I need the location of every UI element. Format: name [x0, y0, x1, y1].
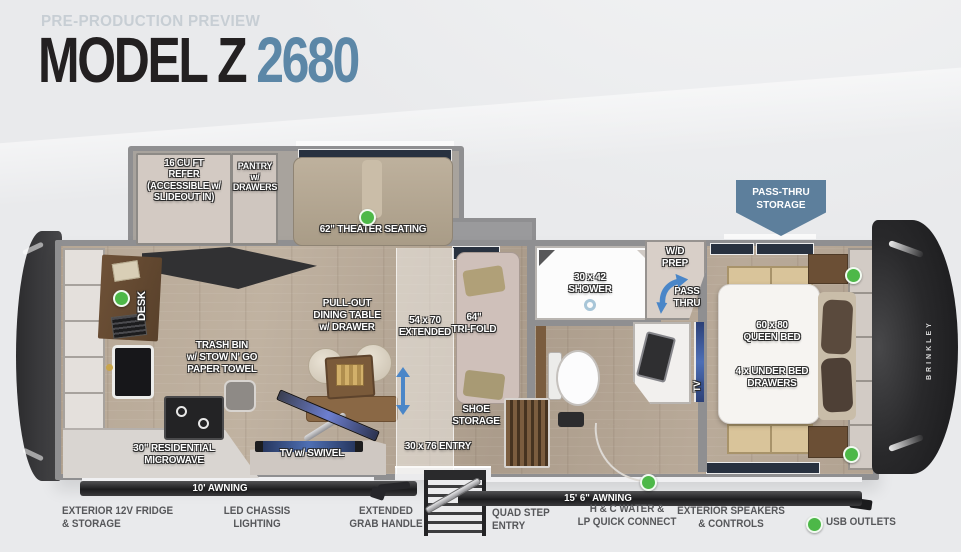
usb-dot-theater	[359, 209, 376, 226]
callout-grab-handle: EXTENDED GRAB HANDLE	[338, 505, 433, 531]
table-extend-arrow-icon	[396, 368, 410, 414]
brand-logo: BRINKLEY	[926, 294, 940, 406]
shower-drain	[584, 299, 596, 311]
legend-usb-label: USB OUTLETS	[826, 516, 907, 529]
awning-left-label: 10' AWNING	[156, 482, 285, 494]
entry-label: 30 x 76 ENTRY	[393, 441, 483, 453]
page-title: MODEL Z2680	[38, 30, 358, 91]
trash-bin	[224, 380, 256, 412]
callout-led-chassis: LED CHASSIS LIGHTING	[204, 505, 310, 531]
sofa-pillow-bottom	[463, 370, 506, 401]
pass-thru-storage-label: PASS-THRU STORAGE	[738, 186, 824, 212]
rear-wall-cabinets	[63, 248, 105, 430]
kitchen-faucet	[106, 364, 113, 371]
floorplan-number: 2680	[256, 24, 358, 96]
range-burner-right	[198, 418, 209, 429]
refer-label: 16 CU FT REFER (ACCESSIBLE w/ SLIDEOUT I…	[139, 158, 229, 203]
range-burner-left	[176, 406, 187, 417]
bedroom-window-top-left	[710, 243, 754, 255]
bedroom-window-bottom	[706, 462, 820, 474]
pantry-label: PANTRY w/ DRAWERS	[232, 162, 279, 194]
toilet-waste-bin	[558, 412, 584, 427]
bedroom-window-trim	[724, 234, 816, 239]
microwave-label: 30" RESIDENTIAL MICROWAVE	[103, 443, 246, 467]
bath-wood-panel	[536, 326, 546, 408]
callout-water-lp: H & C WATER & LP QUICK CONNECT	[569, 503, 686, 529]
callout-exterior-fridge: EXTERIOR 12V FRIDGE & STORAGE	[62, 505, 179, 531]
body-bottom-trim-right	[458, 477, 862, 482]
theater-label: 62" THEATER SEATING	[293, 224, 453, 236]
under-bed-label: 4 x UNDER BED DRAWERS	[716, 366, 829, 390]
pass-thru-arrow-icon	[650, 272, 690, 314]
trash-label: TRASH BIN w/ STOW N' GO PAPER TOWEL	[152, 340, 291, 376]
bed-pillow-top	[821, 299, 854, 354]
callout-exterior-speakers: EXTERIOR SPEAKERS & CONTROLS	[674, 505, 787, 531]
dining-label: PULL-OUT DINING TABLE w/ DRAWER	[292, 298, 403, 334]
kitchen-sink	[112, 345, 154, 399]
model-name: MODEL Z	[38, 24, 245, 96]
bedroom-window-top-right	[756, 243, 814, 255]
floorplan-page: PRE-PRODUCTION PREVIEW MODEL Z2680 16 CU…	[0, 0, 961, 552]
usb-dot-desk	[113, 290, 130, 307]
shower-label: 30 x 42 SHOWER	[547, 272, 633, 296]
usb-dot-bedroom-top	[845, 267, 862, 284]
tv-swivel-label: TV w/ SWIVEL	[246, 448, 378, 460]
usb-dot-bedroom-bottom	[843, 446, 860, 463]
nightstand-top	[808, 254, 848, 284]
usb-dot-exterior	[640, 474, 657, 491]
queen-bed-label: 60 x 80 QUEEN BED	[723, 320, 821, 344]
queen-bed	[718, 284, 820, 424]
wd-prep-label: W/D PREP	[649, 246, 702, 270]
underbed-drawers-bottom	[727, 424, 813, 454]
desk-label: DESK	[136, 278, 152, 334]
range-cooktop	[164, 396, 224, 440]
callout-quad-step: QUAD STEP ENTRY	[492, 507, 573, 533]
table-basket	[336, 364, 364, 386]
bedroom-tv-label: TV	[692, 372, 706, 400]
legend-usb-dot	[806, 516, 823, 533]
shoe-storage-label: SHOE STORAGE	[438, 404, 513, 428]
trifold-label: 64" TRI-FOLD	[440, 312, 508, 336]
toilet	[556, 350, 600, 406]
nightstand-bottom	[808, 426, 848, 458]
